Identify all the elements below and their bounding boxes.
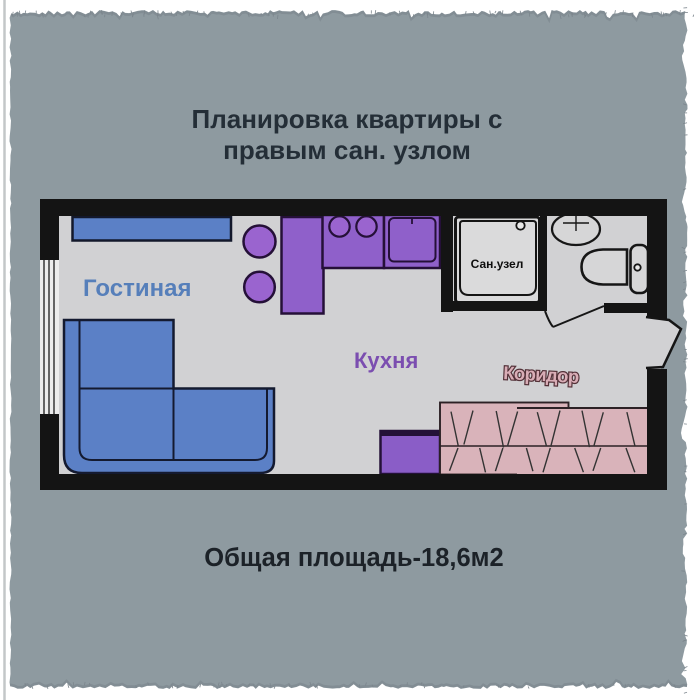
svg-text:Планировка квартиры с: Планировка квартиры с xyxy=(192,104,503,134)
svg-text:правым сан. узлом: правым сан. узлом xyxy=(223,135,471,165)
svg-text:Общая площадь-18,6м2: Общая площадь-18,6м2 xyxy=(204,544,503,572)
svg-text:Коридор: Коридор xyxy=(503,362,580,387)
svg-text:Кухня: Кухня xyxy=(354,348,418,373)
svg-text:Сан.узел: Сан.узел xyxy=(471,257,524,271)
svg-text:Гостиная: Гостиная xyxy=(83,275,191,302)
